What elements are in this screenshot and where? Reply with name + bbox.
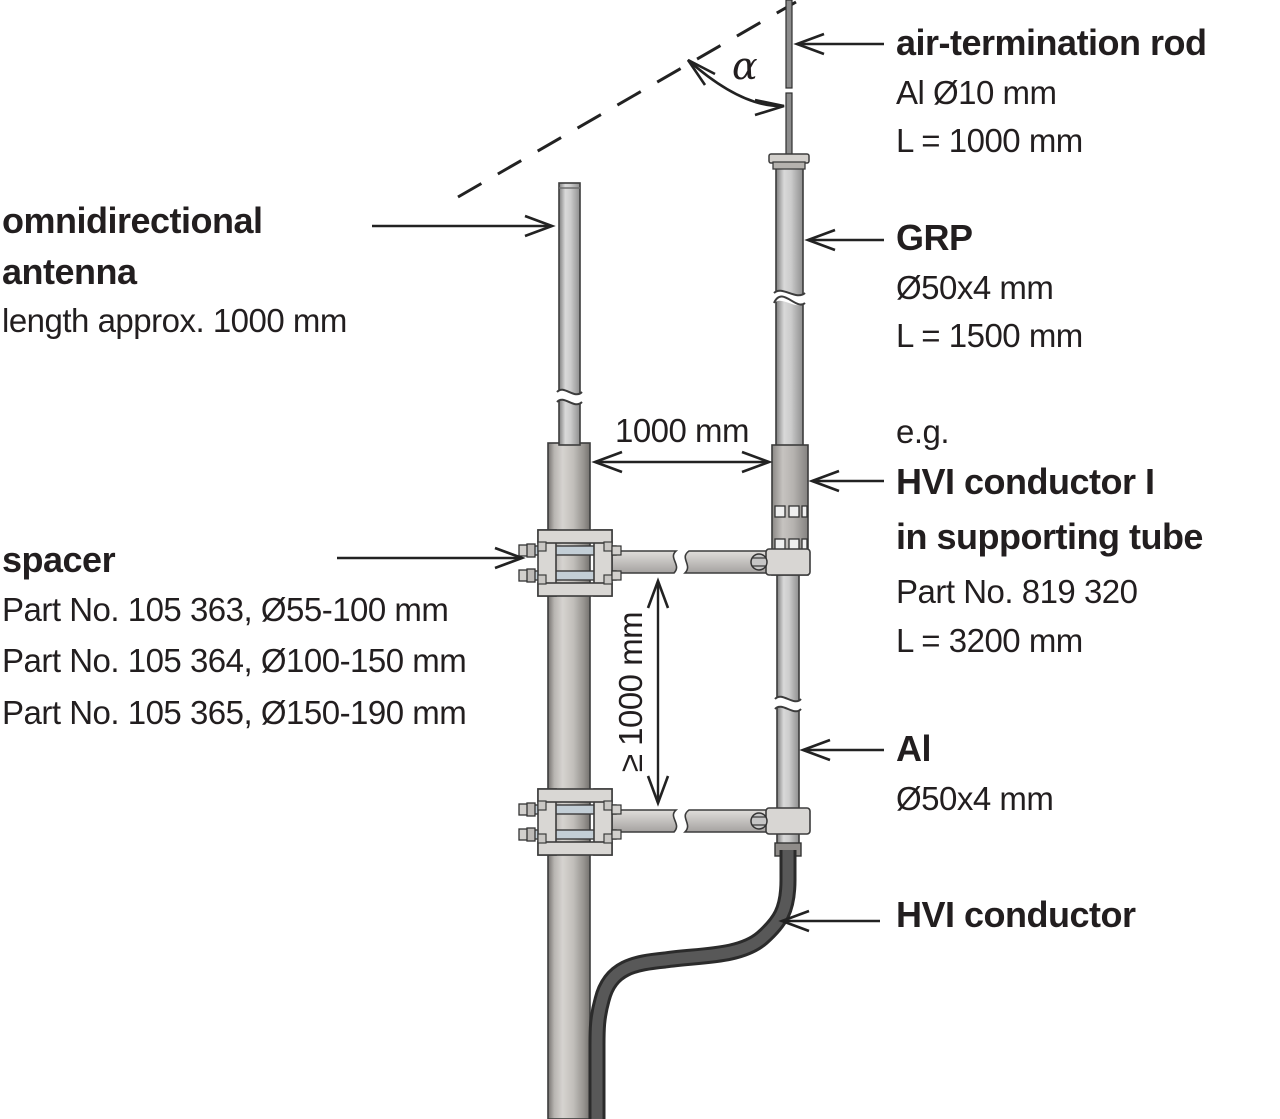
collar-bolt-icon xyxy=(751,813,767,829)
diagram-canvas xyxy=(0,0,1280,1119)
tube-collar-lower xyxy=(766,808,810,834)
spacer-part-number-1: Part No. 105 363, Ø55-100 mm xyxy=(2,592,448,628)
collar-bolt-icon xyxy=(751,554,767,570)
lower-spacer-arm xyxy=(612,808,810,834)
spacer-part-number-3: Part No. 105 365, Ø150-190 mm xyxy=(2,695,466,731)
supporting-tube-assembly xyxy=(772,167,808,856)
spacer-part-number-2: Part No. 105 364, Ø100-150 mm xyxy=(2,643,466,679)
hvi-conductor-cable xyxy=(597,850,788,1119)
al-label-detail-1: Ø50x4 mm xyxy=(896,781,1053,817)
grp-supporting-tube xyxy=(774,167,805,447)
grp-label-detail-2: L = 1500 mm xyxy=(896,318,1083,354)
diagram-page: omnidirectional antenna length approx. 1… xyxy=(0,0,1280,1119)
hvi-in-tube-label-detail-1: Part No. 819 320 xyxy=(896,574,1138,610)
protection-angle-symbol: α xyxy=(732,46,757,88)
air-termination-rod-label-detail-1: Al Ø10 mm xyxy=(896,75,1057,111)
upper-spacer-arm xyxy=(612,549,810,575)
air-termination-rod xyxy=(769,0,809,169)
spacer-label-title: spacer xyxy=(2,540,115,580)
antenna-label-title-2: antenna xyxy=(2,252,137,292)
hvi-in-tube-label-title-2: in supporting tube xyxy=(896,517,1203,557)
grp-label-detail-1: Ø50x4 mm xyxy=(896,270,1053,306)
grp-label-title: GRP xyxy=(896,218,973,258)
al-label-title: Al xyxy=(896,729,931,769)
antenna-label-title-1: omnidirectional xyxy=(2,201,263,241)
antenna-label-detail: length approx. 1000 mm xyxy=(2,303,347,339)
hvi-in-tube-label-title-1: HVI conductor I xyxy=(896,462,1155,502)
omnidirectional-antenna-tube xyxy=(557,183,582,445)
hvi-in-tube-label-detail-2: L = 3200 mm xyxy=(896,623,1083,659)
hvi-in-tube-label-prefix: e.g. xyxy=(896,414,949,450)
air-termination-rod-label-title: air-termination rod xyxy=(896,23,1207,63)
tube-collar-upper xyxy=(766,549,810,575)
dimension-vertical-text: ≥ 1000 mm xyxy=(613,592,653,792)
antenna-mast xyxy=(548,183,590,1119)
air-termination-rod-label-detail-2: L = 1000 mm xyxy=(896,123,1083,159)
dimension-horizontal-text: 1000 mm xyxy=(592,413,772,449)
hvi-conductor-label-title: HVI conductor xyxy=(896,895,1136,935)
